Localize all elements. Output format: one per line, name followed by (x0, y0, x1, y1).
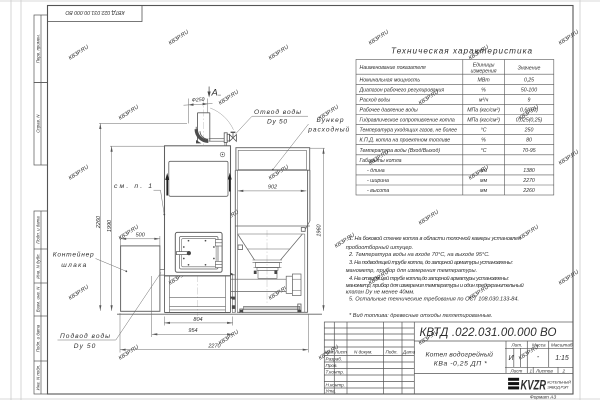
svg-text:0,025(0,25): 0,025(0,25) (516, 118, 543, 124)
svg-text:Номинальная мощность: Номинальная мощность (360, 77, 421, 83)
svg-text:Ф250: Ф250 (192, 97, 205, 104)
svg-text:Габариты котла: Габариты котла (360, 158, 402, 164)
svg-text:Формат А3: Формат А3 (530, 395, 557, 400)
svg-text:Листов: Листов (535, 368, 553, 373)
svg-text:954: 954 (188, 328, 197, 334)
svg-text:4. На отводящей трубе котла,до: 4. На отводящей трубе котла,до запорной … (349, 275, 509, 282)
svg-text:2260: 2260 (96, 215, 102, 229)
svg-text:Расход воды: Расход воды (360, 97, 391, 103)
svg-text:Наименование показателя: Наименование показателя (360, 65, 426, 71)
svg-text:0,25: 0,25 (524, 77, 534, 83)
svg-text:804: 804 (193, 317, 202, 323)
svg-text:КВТД .022.031.00.000 ВО: КВТД .022.031.00.000 ВО (420, 327, 557, 339)
svg-text:манометр, прибор для измерения: манометр, прибор для измерения температу… (346, 268, 477, 274)
svg-text:Подп. и дата: Подп. и дата (35, 324, 40, 352)
svg-text:500: 500 (136, 233, 146, 239)
svg-text:Разраб.: Разраб. (326, 356, 343, 361)
svg-text:мм: мм (480, 178, 488, 184)
svg-text:МПа (кгс/см²): МПа (кгс/см²) (467, 118, 500, 124)
svg-text:250: 250 (524, 128, 534, 134)
svg-text:м³/ч: м³/ч (479, 97, 489, 103)
svg-text:Утв.: Утв. (326, 389, 336, 394)
svg-text:1990: 1990 (107, 219, 113, 232)
svg-text:1:15: 1:15 (555, 355, 569, 362)
svg-text:80: 80 (526, 138, 532, 144)
svg-text:2270: 2270 (207, 343, 221, 349)
svg-text:- высота: - высота (367, 188, 389, 194)
svg-text:9: 9 (528, 97, 531, 103)
svg-text:Лит.: Лит. (511, 343, 523, 348)
svg-text:Пров.: Пров. (326, 363, 338, 368)
svg-text:KVZR: KVZR (521, 378, 547, 393)
svg-text:Лист: Лист (334, 350, 347, 355)
svg-text:Техническая характеристика: Техническая характеристика (391, 47, 532, 56)
svg-text:К.П.Д. котла на проектном топл: К.П.Д. котла на проектном топливе (360, 138, 451, 144)
svg-text:°С: °С (481, 128, 487, 134)
svg-text:Dy 50: Dy 50 (267, 118, 287, 125)
svg-text:Значение: Значение (518, 66, 541, 72)
svg-text:МПа (кгс/см²): МПа (кгс/см²) (467, 108, 500, 114)
svg-text:Отвод воды: Отвод воды (254, 108, 301, 116)
svg-text:Dy 50: Dy 50 (74, 343, 96, 350)
svg-text:%: % (481, 87, 486, 93)
svg-text:расходный: расходный (307, 125, 349, 133)
svg-text:2: 2 (562, 368, 566, 373)
svg-text:2. Температура воды на входе 7: 2. Температура воды на входе 70°С, на вы… (348, 252, 490, 258)
svg-text:%: % (481, 138, 486, 144)
svg-text:Диапазон рабочего регулировани: Диапазон рабочего регулирования (359, 87, 445, 93)
svg-text:А: А (211, 88, 218, 99)
svg-text:- длина: - длина (367, 168, 385, 174)
svg-text:мм: мм (480, 168, 488, 174)
svg-text:Инв. N подл.: Инв. N подл. (35, 365, 40, 391)
svg-text:Дата: Дата (402, 350, 416, 355)
svg-text:измерения: измерения (471, 69, 497, 75)
svg-text:Контейнер: Контейнер (53, 250, 94, 258)
svg-text:1: 1 (530, 368, 533, 373)
svg-text:Подп.: Подп. (386, 350, 398, 355)
svg-text:0,6(6,0): 0,6(6,0) (520, 108, 538, 114)
svg-text:Т.контр.: Т.контр. (326, 369, 345, 374)
svg-text:°С: °С (481, 148, 487, 154)
svg-text:Масса: Масса (532, 343, 546, 348)
svg-text:мм: мм (480, 188, 488, 194)
svg-text:Бункер: Бункер (317, 117, 344, 124)
svg-text:Лист: Лист (510, 368, 523, 373)
svg-text:2260: 2260 (522, 188, 535, 194)
svg-text:* Вид топлива: древесные отход: * Вид топлива: древесные отходы пеллетир… (349, 313, 493, 319)
svg-text:5. Остальные технические требо: 5. Остальные технические требования по О… (349, 297, 519, 303)
svg-text:Котел водогрейный: Котел водогрейный (425, 350, 493, 358)
svg-text:манометр, прибор для измерения: манометр, прибор для измерения температу… (346, 282, 524, 289)
svg-text:ЗАВОД РЭП: ЗАВОД РЭП (547, 385, 568, 390)
svg-text:2270: 2270 (522, 178, 535, 184)
svg-text:1. На боковой стенке котла в о: 1. На боковой стенке котла в области топ… (349, 235, 521, 242)
svg-text:Рабочее давление воды: Рабочее давление воды (360, 108, 418, 114)
svg-text:Подвод воды: Подвод воды (60, 332, 110, 340)
svg-text:Масштаб: Масштаб (551, 343, 573, 348)
svg-text:Перв. примен.: Перв. примен. (35, 34, 40, 63)
svg-text:КВТД.022.031.00.000 ВО: КВТД.022.031.00.000 ВО (65, 9, 124, 15)
svg-text:Гидравлическое сопротивление к: Гидравлическое сопротивление котла (360, 118, 455, 124)
svg-text:Изм.: Изм. (325, 350, 335, 355)
svg-text:1380: 1380 (523, 168, 535, 174)
svg-text:N докум.: N докум. (354, 350, 373, 355)
svg-text:Н.контр.: Н.контр. (326, 382, 345, 387)
svg-text:50-100: 50-100 (521, 87, 537, 93)
svg-text:Температура воды (Вход/Выход): Температура воды (Вход/Выход) (360, 148, 441, 154)
svg-text:Подп. и дата: Подп. и дата (35, 216, 40, 244)
svg-text:70-95: 70-95 (522, 148, 535, 154)
svg-text:КВа -0,25 ДП *: КВа -0,25 ДП * (434, 361, 487, 368)
svg-text:- ширина: - ширина (367, 178, 389, 184)
svg-text:пробоотборный штуцер.: пробоотборный штуцер. (346, 244, 414, 251)
svg-text:шлака: шлака (61, 262, 86, 269)
svg-text:МВт: МВт (478, 77, 491, 83)
svg-text:Взам. инв. N: Взам. инв. N (35, 286, 40, 312)
svg-text:Температура уходящих газов, не: Температура уходящих газов, не более (360, 128, 458, 134)
svg-text:3. На подводящей трубе котла,: 3. На подводящей трубе котла, до запорно… (349, 259, 513, 266)
svg-text:клапан Dу не менее 40мм.: клапан Dу не менее 40мм. (346, 290, 415, 296)
svg-text:Справ. N: Справ. N (35, 114, 40, 133)
svg-text:Инв. N дубл.: Инв. N дубл. (35, 253, 40, 278)
svg-text:902: 902 (268, 185, 277, 191)
svg-text:1960: 1960 (316, 223, 322, 236)
